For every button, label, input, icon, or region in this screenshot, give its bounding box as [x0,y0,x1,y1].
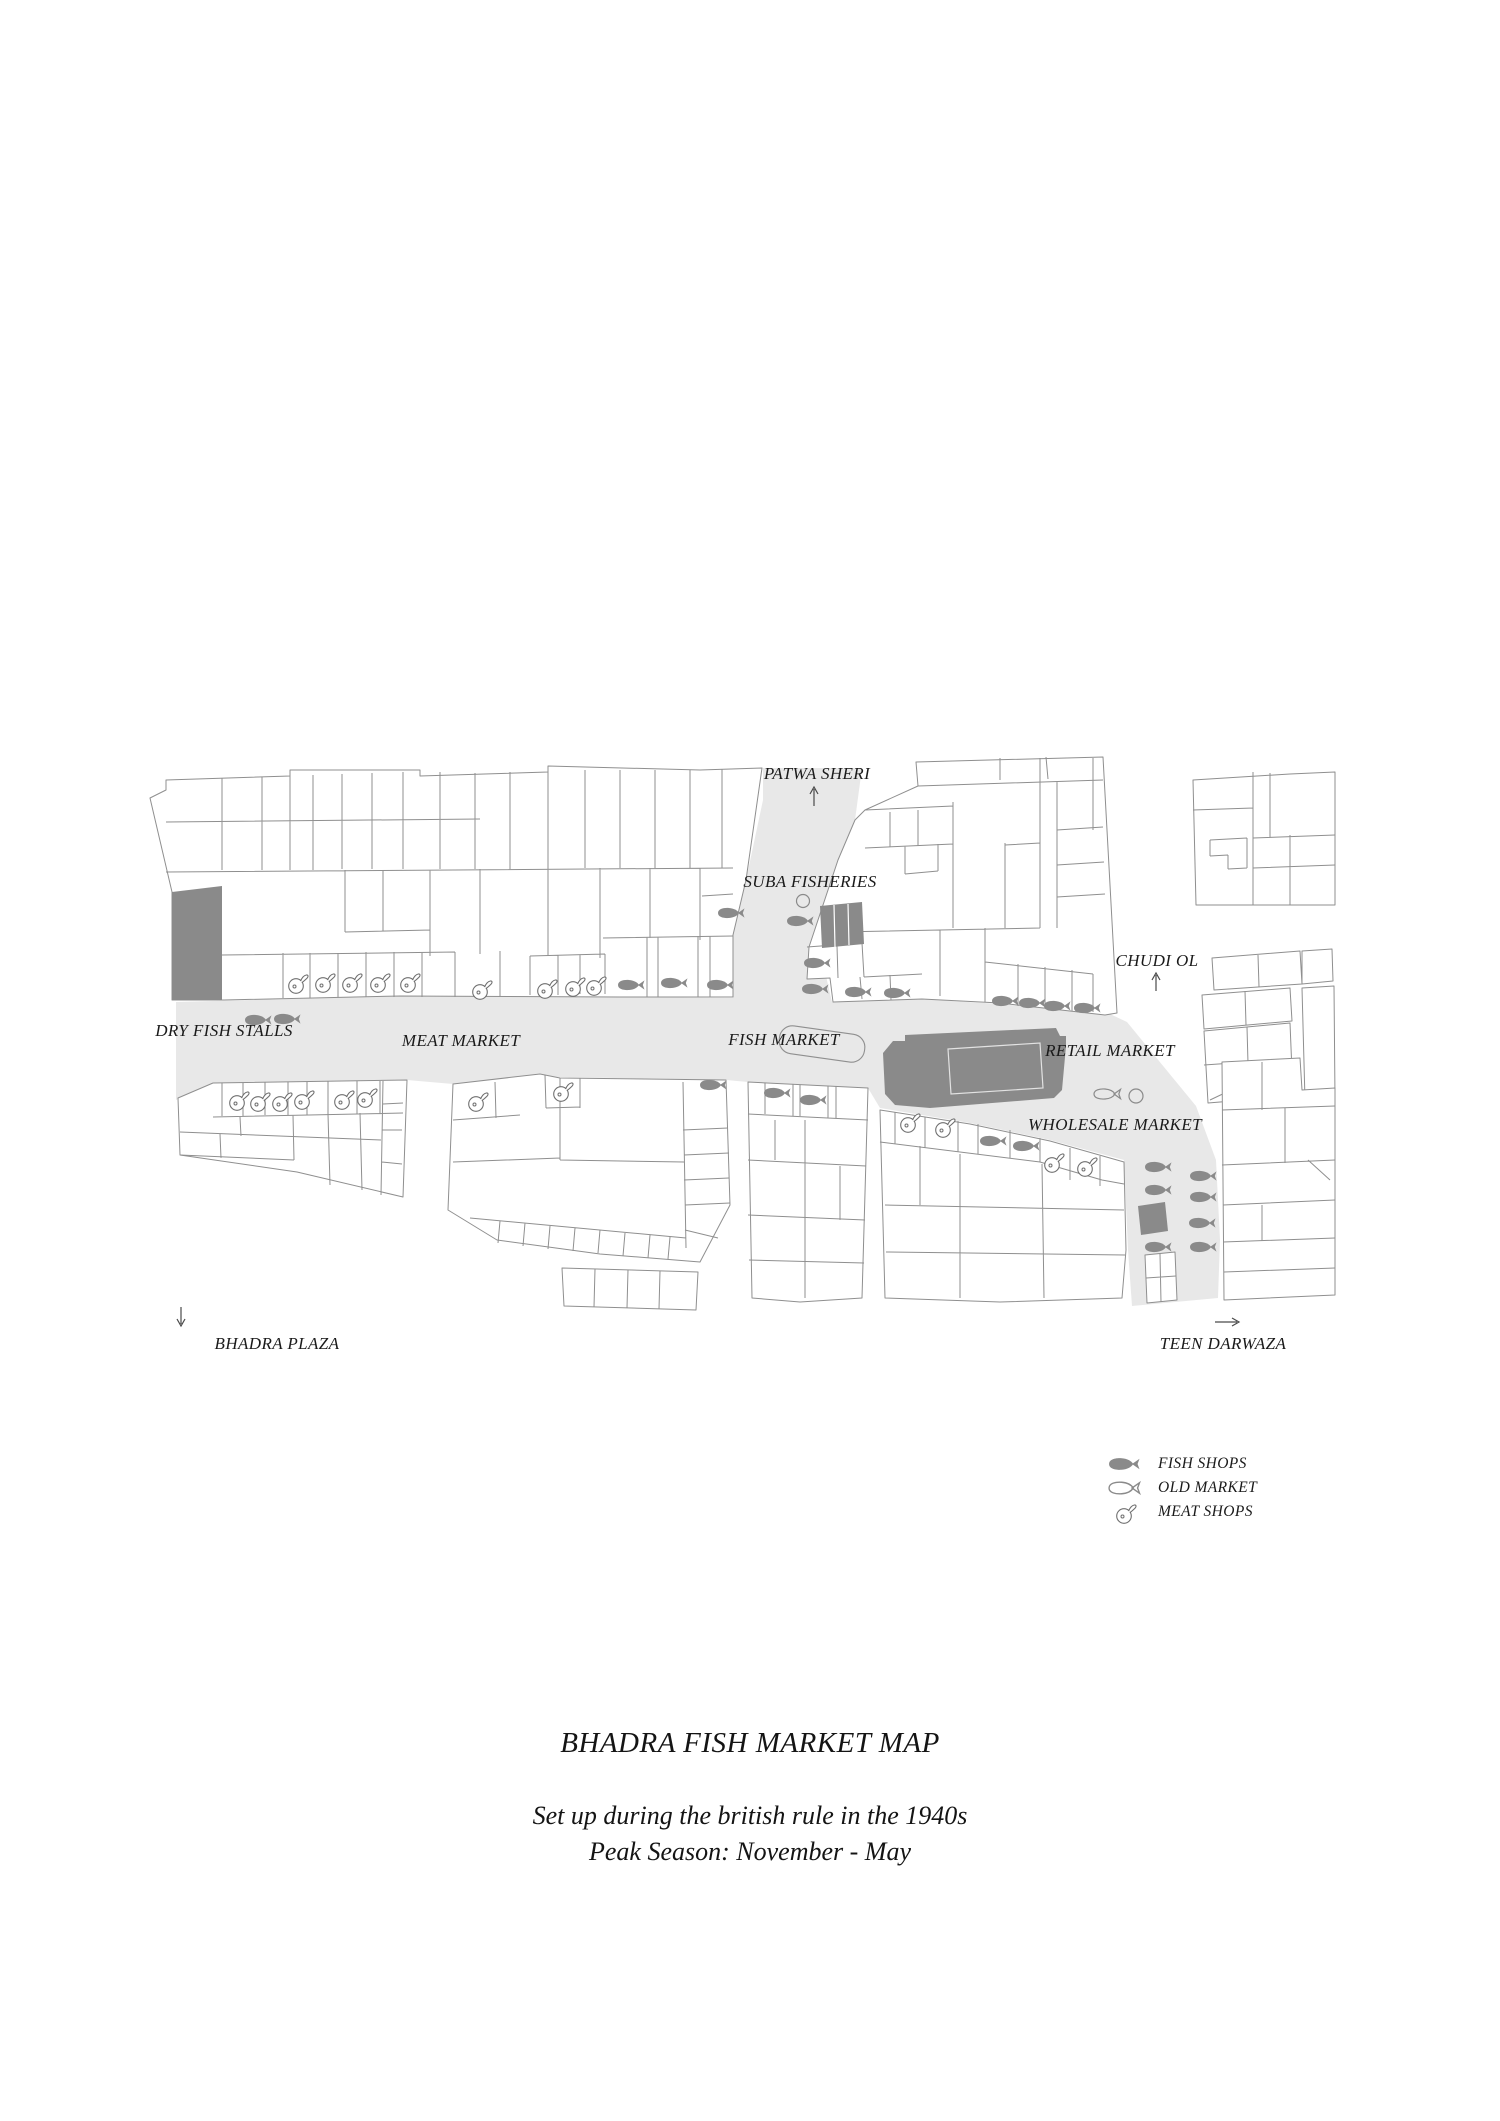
teen-darwaza-arrow-icon [1215,1318,1239,1326]
legend-label: FISH SHOPS [1144,1455,1247,1473]
meat-outline-icon [1104,1499,1144,1525]
building-block-south-middle [748,1082,868,1302]
area-label-dry-fish-stalls: DRY FISH STALLS [155,1021,293,1041]
building-block-south-center [448,1074,730,1310]
suba-fisheries-building [820,902,864,948]
page-subtitle-history: Set up during the british rule in the 19… [0,1801,1500,1831]
bhadra-fish-market-map-page: PATWA SHERI SUBA FISHERIES CHUDI OL DRY … [0,0,1500,2121]
area-label-suba-fisheries: SUBA FISHERIES [743,872,876,892]
area-label-meat-market: MEAT MARKET [402,1031,520,1051]
dry-fish-building [172,886,222,1000]
area-label-fish-market: FISH MARKET [728,1030,840,1050]
legend-label: MEAT SHOPS [1144,1503,1253,1521]
building-block-far-northeast [1193,772,1335,905]
legend-row-meat-shops: MEAT SHOPS [1104,1500,1257,1524]
area-label-wholesale-market: WHOLESALE MARKET [1028,1115,1202,1135]
legend-label: OLD MARKET [1144,1479,1257,1497]
street-label-chudi-ol: CHUDI OL [1115,951,1198,971]
retail-market-building [883,1028,1066,1108]
building-block-southwest [178,1080,407,1197]
fish-outline-icon [1104,1479,1144,1497]
page-title: BHADRA FISH MARKET MAP [0,1727,1500,1760]
fish-solid-icon [1104,1455,1144,1473]
bhadra-plaza-arrow-icon [177,1307,185,1326]
street-label-teen-darwaza: TEEN DARWAZA [1160,1334,1287,1354]
map-legend: FISH SHOPS OLD MARKET MEAT SHOPS [1104,1452,1257,1524]
chudi-ol-arrow-icon [1152,973,1160,991]
street-label-patwa-sheri: PATWA SHERI [764,764,870,784]
legend-row-fish-shops: FISH SHOPS [1104,1452,1257,1476]
building-block-northwest [150,766,762,1000]
wholesale-street-building [1138,1202,1168,1235]
page-subtitle-season: Peak Season: November - May [0,1837,1500,1867]
street-label-bhadra-plaza: BHADRA PLAZA [215,1334,340,1354]
legend-row-old-market: OLD MARKET [1104,1476,1257,1500]
area-label-retail-market: RETAIL MARKET [1045,1041,1175,1061]
